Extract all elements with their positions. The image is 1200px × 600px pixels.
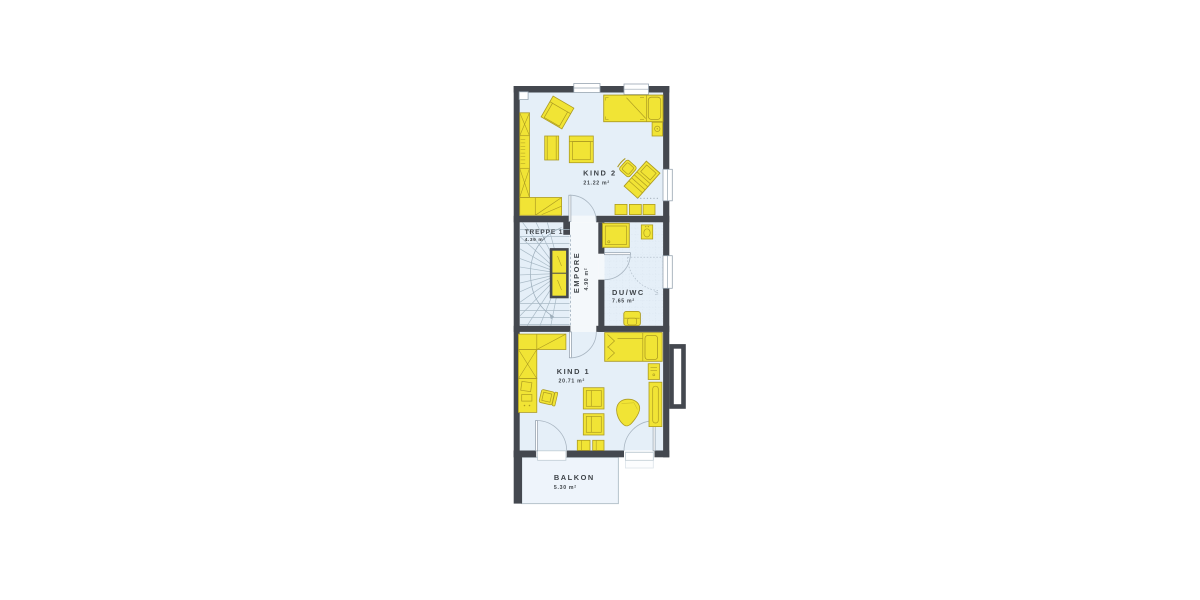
svg-text:21.22 m2: 21.22 m2 <box>583 180 609 187</box>
svg-text:EMPORE: EMPORE <box>572 252 581 293</box>
svg-text:DU/WC: DU/WC <box>612 288 645 297</box>
svg-text:4.90 m2: 4.90 m2 <box>584 268 591 290</box>
svg-text:20.71 m2: 20.71 m2 <box>559 378 585 385</box>
svg-text:BALKON: BALKON <box>554 473 595 482</box>
svg-text:5.30 m2: 5.30 m2 <box>554 484 576 491</box>
svg-text:KIND 2: KIND 2 <box>583 169 617 178</box>
svg-text:TREPPE 1: TREPPE 1 <box>525 229 564 236</box>
svg-text:KIND 1: KIND 1 <box>557 367 591 376</box>
svg-text:4.39 m2: 4.39 m2 <box>525 236 546 243</box>
svg-text:7.65 m2: 7.65 m2 <box>612 298 634 305</box>
